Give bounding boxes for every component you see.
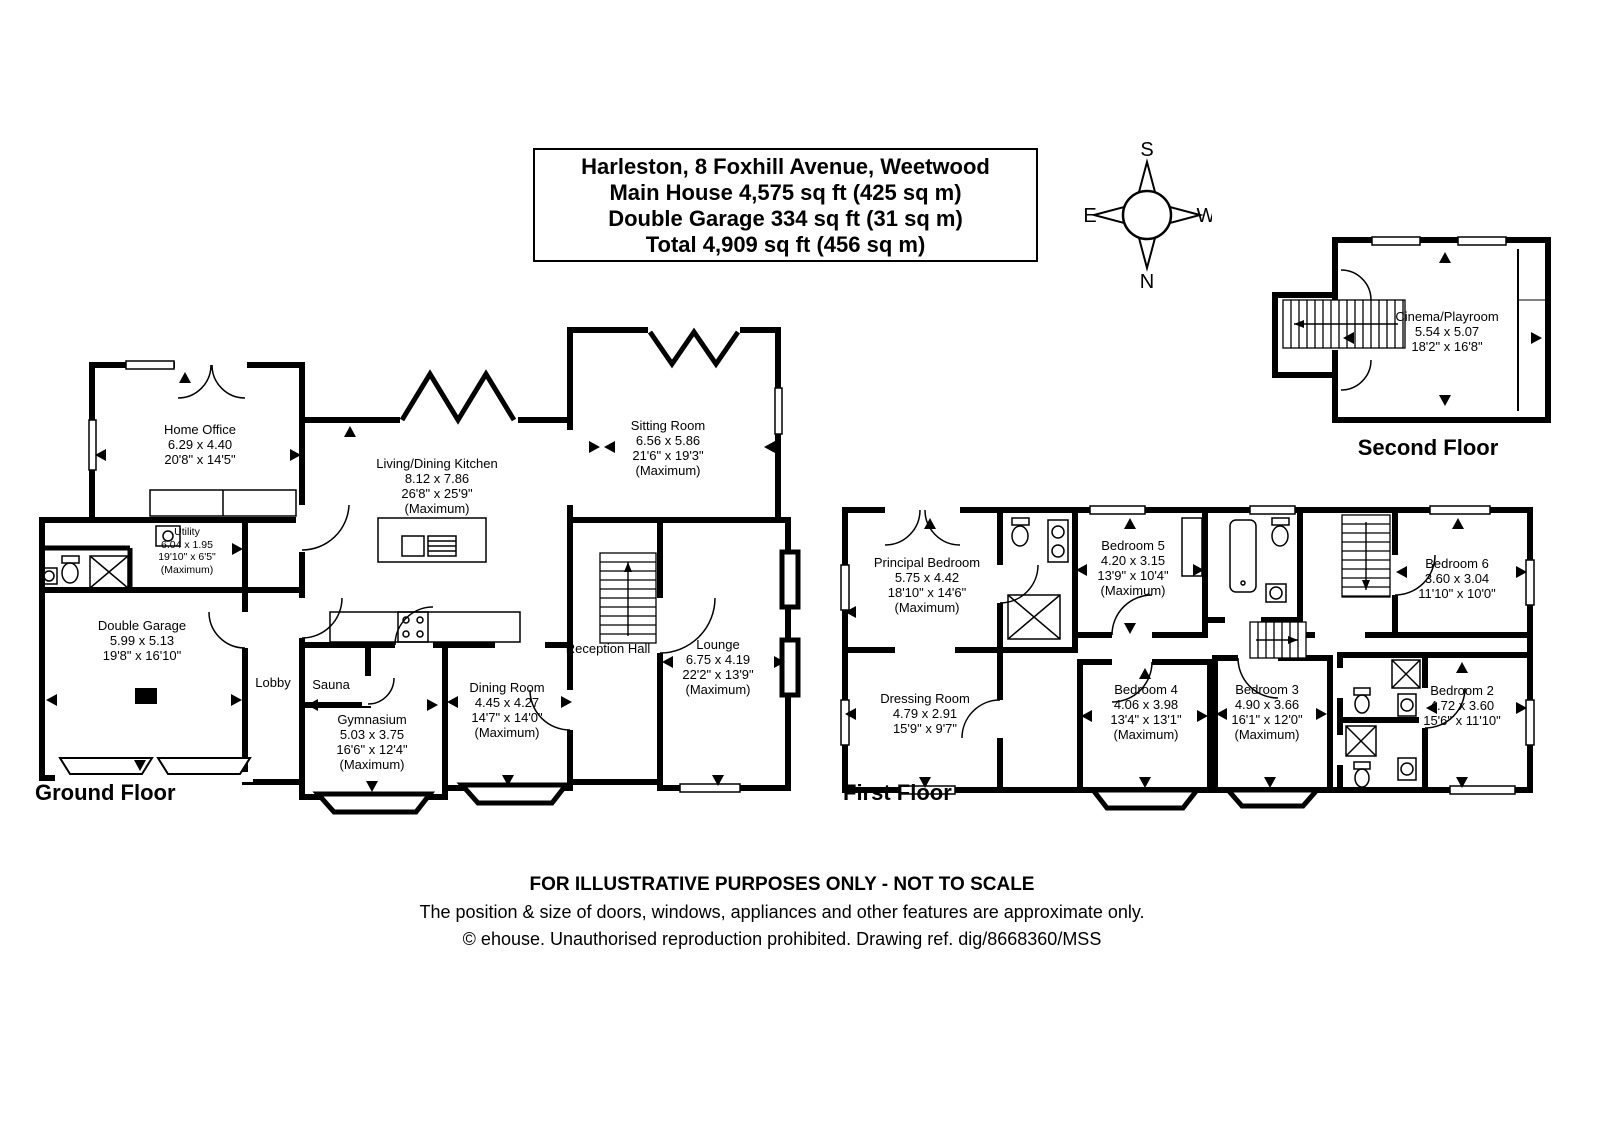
compass-north-label: N	[1140, 271, 1154, 290]
room-label-double-garage: Double Garage 5.99 x 5.13 19'8" x 16'10"	[62, 618, 222, 663]
room-label-utility: Utility 6.04 x 1.95 19'10" x 6'5" (Maxim…	[122, 526, 252, 576]
total-area: Total 4,909 sq ft (456 sq m)	[535, 232, 1036, 258]
main-house-area: Main House 4,575 sq ft (425 sq m)	[535, 180, 1036, 206]
title-box: Harleston, 8 Foxhill Avenue, Weetwood Ma…	[533, 148, 1038, 262]
first-floor-title: First Floor	[843, 780, 952, 806]
room-label-reception-hall: Reception Hall	[563, 641, 653, 656]
room-label-cinema-playroom: Cinema/Playroom 5.54 x 5.07 18'2" x 16'8…	[1367, 309, 1527, 354]
compass-rose-icon: S N E W	[1082, 140, 1212, 290]
room-label-kitchen: Living/Dining Kitchen 8.12 x 7.86 26'8" …	[357, 456, 517, 516]
room-label-dressing-room: Dressing Room 4.79 x 2.91 15'9" x 9'7"	[845, 691, 1005, 736]
second-floor-title: Second Floor	[1328, 435, 1528, 461]
room-label-dining-room: Dining Room 4.45 x 4.27 14'7" x 14'0" (M…	[437, 680, 577, 740]
room-label-home-office: Home Office 6.29 x 4.40 20'8" x 14'5"	[125, 422, 275, 467]
compass-east-label: E	[1083, 205, 1096, 227]
room-label-bedroom-3: Bedroom 3 4.90 x 3.66 16'1" x 12'0" (Max…	[1192, 682, 1342, 742]
room-label-lounge: Lounge 6.75 x 4.19 22'2" x 13'9" (Maximu…	[648, 637, 788, 697]
room-label-gymnasium: Gymnasium 5.03 x 3.75 16'6" x 12'4" (Max…	[302, 712, 442, 772]
pillar	[135, 688, 157, 704]
compass-south-label: S	[1140, 140, 1153, 161]
room-label-bedroom-2: Bedroom 2 4.72 x 3.60 15'6" x 11'10"	[1387, 683, 1537, 728]
room-label-lobby: Lobby	[242, 675, 304, 690]
garage-area: Double Garage 334 sq ft (31 sq m)	[535, 206, 1036, 232]
room-label-sitting-room: Sitting Room 6.56 x 5.86 21'6" x 19'3" (…	[593, 418, 743, 478]
ground-floor-title: Ground Floor	[35, 780, 176, 806]
room-label-bedroom-5: Bedroom 5 4.20 x 3.15 13'9" x 10'4" (Max…	[1058, 538, 1208, 598]
footer: FOR ILLUSTRATIVE PURPOSES ONLY - NOT TO …	[0, 871, 1564, 953]
room-label-sauna: Sauna	[301, 677, 361, 692]
copyright-line: © ehouse. Unauthorised reproduction proh…	[0, 926, 1564, 953]
room-label-bedroom-6: Bedroom 6 3.60 x 3.04 11'10" x 10'0"	[1382, 556, 1532, 601]
property-address: Harleston, 8 Foxhill Avenue, Weetwood	[535, 154, 1036, 180]
room-label-principal-bedroom: Principal Bedroom 5.75 x 4.42 18'10" x 1…	[847, 555, 1007, 615]
disclaimer-line: FOR ILLUSTRATIVE PURPOSES ONLY - NOT TO …	[0, 871, 1564, 899]
approximation-note: The position & size of doors, windows, a…	[0, 899, 1564, 926]
floorplan-page: Harleston, 8 Foxhill Avenue, Weetwood Ma…	[0, 0, 1600, 1131]
compass-west-label: W	[1197, 205, 1212, 227]
